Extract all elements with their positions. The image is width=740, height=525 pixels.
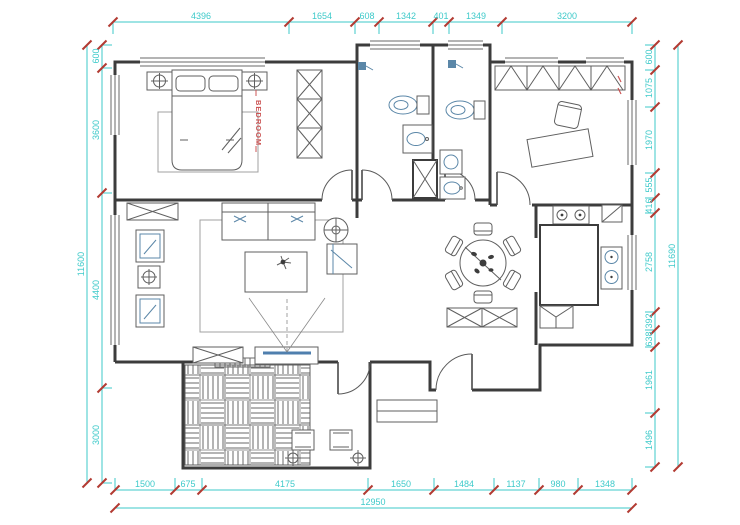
sofa bbox=[222, 203, 315, 240]
stool-2 bbox=[330, 430, 352, 450]
tv-stand bbox=[249, 298, 325, 364]
wardrobe-bedroom bbox=[297, 70, 322, 158]
dim-label: 980 bbox=[550, 479, 565, 489]
dim-label: 608 bbox=[359, 11, 374, 21]
dim-label: 4175 bbox=[275, 479, 295, 489]
stool-1 bbox=[292, 430, 314, 450]
kitchen bbox=[540, 205, 622, 328]
dim-label: 675 bbox=[180, 479, 195, 489]
double-bed bbox=[172, 70, 242, 170]
cabinet-bottom-left bbox=[193, 347, 243, 363]
dim-total-label: 11690 bbox=[667, 244, 677, 268]
dim-total-label: 12950 bbox=[360, 497, 385, 507]
side-table-cross bbox=[138, 266, 160, 288]
dim-label: 638 bbox=[644, 331, 654, 346]
dining-area bbox=[444, 223, 521, 327]
fridge bbox=[540, 306, 573, 328]
dim-label: 555 bbox=[644, 177, 654, 192]
dim-label: 1075 bbox=[644, 78, 654, 98]
dim-label: 1484 bbox=[454, 479, 474, 489]
dimension-top: 4396 1654 608 1342 401 1349 3200 bbox=[109, 11, 637, 34]
floor-plan-page: 4396 1654 608 1342 401 1349 3200 1500 67… bbox=[0, 0, 740, 525]
entry bbox=[377, 400, 437, 422]
dim-label: 1342 bbox=[396, 11, 416, 21]
side-table-lamp bbox=[324, 218, 348, 242]
sideboard bbox=[447, 308, 517, 327]
dim-label: 3200 bbox=[557, 11, 577, 21]
dimension-left: 600 3600 4400 3000 11600 bbox=[76, 41, 112, 488]
dim-label: 3000 bbox=[91, 425, 101, 445]
dim-label: 1970 bbox=[644, 130, 654, 150]
dim-label: 1349 bbox=[466, 11, 486, 21]
shower-head-icon bbox=[358, 62, 373, 70]
floor-plan-canvas: 4396 1654 608 1342 401 1349 3200 1500 67… bbox=[0, 0, 740, 525]
dim-label: 401 bbox=[433, 11, 448, 21]
accent-chair-2 bbox=[136, 295, 164, 327]
kitchen-counter bbox=[540, 225, 598, 305]
wash-basin bbox=[440, 177, 465, 199]
dining-table bbox=[460, 240, 506, 286]
cabinet-top-left bbox=[127, 203, 178, 220]
dim-label: 1650 bbox=[391, 479, 411, 489]
dim-label: 1137 bbox=[506, 479, 525, 489]
washing-machine bbox=[440, 150, 462, 174]
stove-icon bbox=[553, 206, 589, 224]
accent-chair-1 bbox=[136, 230, 164, 262]
dimension-bottom: 1500 675 4175 1650 1484 1137 980 1348 12… bbox=[111, 478, 637, 513]
double-sink-icon bbox=[601, 247, 622, 289]
dim-total-label: 11600 bbox=[76, 252, 86, 276]
bedroom-label-group: BEDROOM bbox=[254, 90, 263, 152]
dim-label: 1961 bbox=[644, 370, 654, 390]
dining-chair bbox=[444, 269, 463, 291]
door-balcony bbox=[338, 362, 370, 394]
dim-label: 600 bbox=[644, 49, 654, 64]
coffee-table bbox=[245, 252, 307, 292]
dim-label: 1500 bbox=[135, 479, 155, 489]
dim-label: 392 bbox=[644, 313, 654, 328]
dim-label: 1654 bbox=[312, 11, 332, 21]
door-entry bbox=[436, 354, 472, 390]
dim-label: 4396 bbox=[191, 11, 211, 21]
dim-label: 1496 bbox=[644, 430, 654, 450]
dining-chair bbox=[474, 291, 492, 303]
bedroom-label: BEDROOM bbox=[254, 100, 263, 146]
dim-label: 1348 bbox=[595, 479, 615, 489]
toilet-icon bbox=[389, 96, 429, 114]
dining-chair bbox=[444, 235, 463, 257]
shower-head-icon bbox=[448, 60, 463, 68]
nightstand-left bbox=[147, 72, 172, 90]
dim-label: 2758 bbox=[644, 252, 654, 272]
toilet-icon bbox=[446, 101, 485, 119]
balcony bbox=[185, 365, 366, 466]
vanity-sink bbox=[403, 125, 432, 153]
armchair-right bbox=[327, 244, 357, 274]
wardrobe-study bbox=[495, 66, 625, 90]
living-room bbox=[127, 203, 357, 364]
door-study bbox=[497, 172, 530, 205]
door-bedroom bbox=[322, 170, 352, 200]
corner-shelf bbox=[602, 205, 622, 222]
master-bedroom: BEDROOM bbox=[147, 70, 322, 172]
balcony-weave-floor bbox=[185, 365, 310, 465]
nightstand-right bbox=[242, 72, 267, 90]
bathroom-1 bbox=[358, 62, 432, 153]
door-bathroom-1 bbox=[362, 170, 392, 200]
dimension-right: 600 1075 1970 555 416 2758 392 638 1961 … bbox=[644, 41, 683, 472]
floor-drain-icon bbox=[350, 450, 366, 466]
dim-label: 600 bbox=[91, 48, 101, 63]
entry-steps bbox=[377, 400, 437, 422]
dim-label: 416 bbox=[644, 198, 654, 213]
dim-label: 3600 bbox=[91, 120, 101, 140]
dim-label: 4400 bbox=[91, 280, 101, 300]
desk-chair bbox=[554, 101, 582, 129]
bathroom-2 bbox=[440, 60, 485, 199]
study-room bbox=[495, 66, 625, 167]
dining-chair bbox=[474, 223, 492, 235]
doors bbox=[322, 170, 530, 394]
dining-chair bbox=[502, 269, 521, 291]
desk bbox=[527, 129, 593, 167]
dining-chair bbox=[502, 235, 521, 257]
